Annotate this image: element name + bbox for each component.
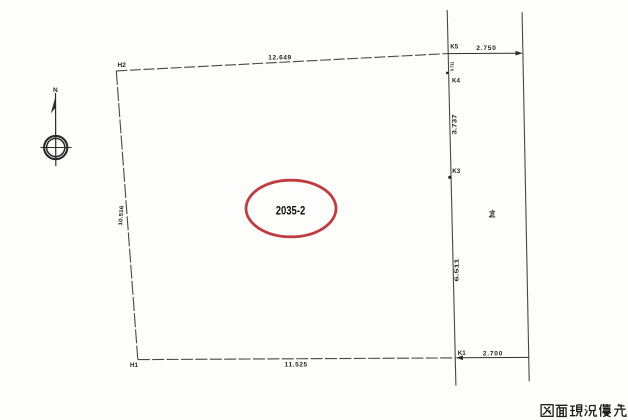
svg-text:K1: K1	[458, 350, 466, 357]
svg-text:6.511: 6.511	[455, 259, 461, 282]
svg-text:H1: H1	[130, 362, 138, 369]
svg-text:H2: H2	[118, 62, 127, 69]
svg-text:12.649: 12.649	[268, 55, 291, 62]
svg-text:2.750: 2.750	[476, 45, 496, 52]
svg-text:0.711: 0.711	[450, 61, 456, 71]
svg-text:K5: K5	[450, 43, 458, 50]
svg-text:2.700: 2.700	[483, 350, 503, 357]
svg-text:N: N	[53, 87, 58, 94]
svg-text:11.525: 11.525	[285, 361, 308, 368]
svg-text:10.516: 10.516	[118, 205, 125, 225]
svg-text:2035-2: 2035-2	[276, 203, 306, 217]
svg-text:3.737: 3.737	[453, 113, 459, 134]
svg-text:K4: K4	[452, 78, 460, 85]
svg-text:K3: K3	[452, 168, 460, 175]
